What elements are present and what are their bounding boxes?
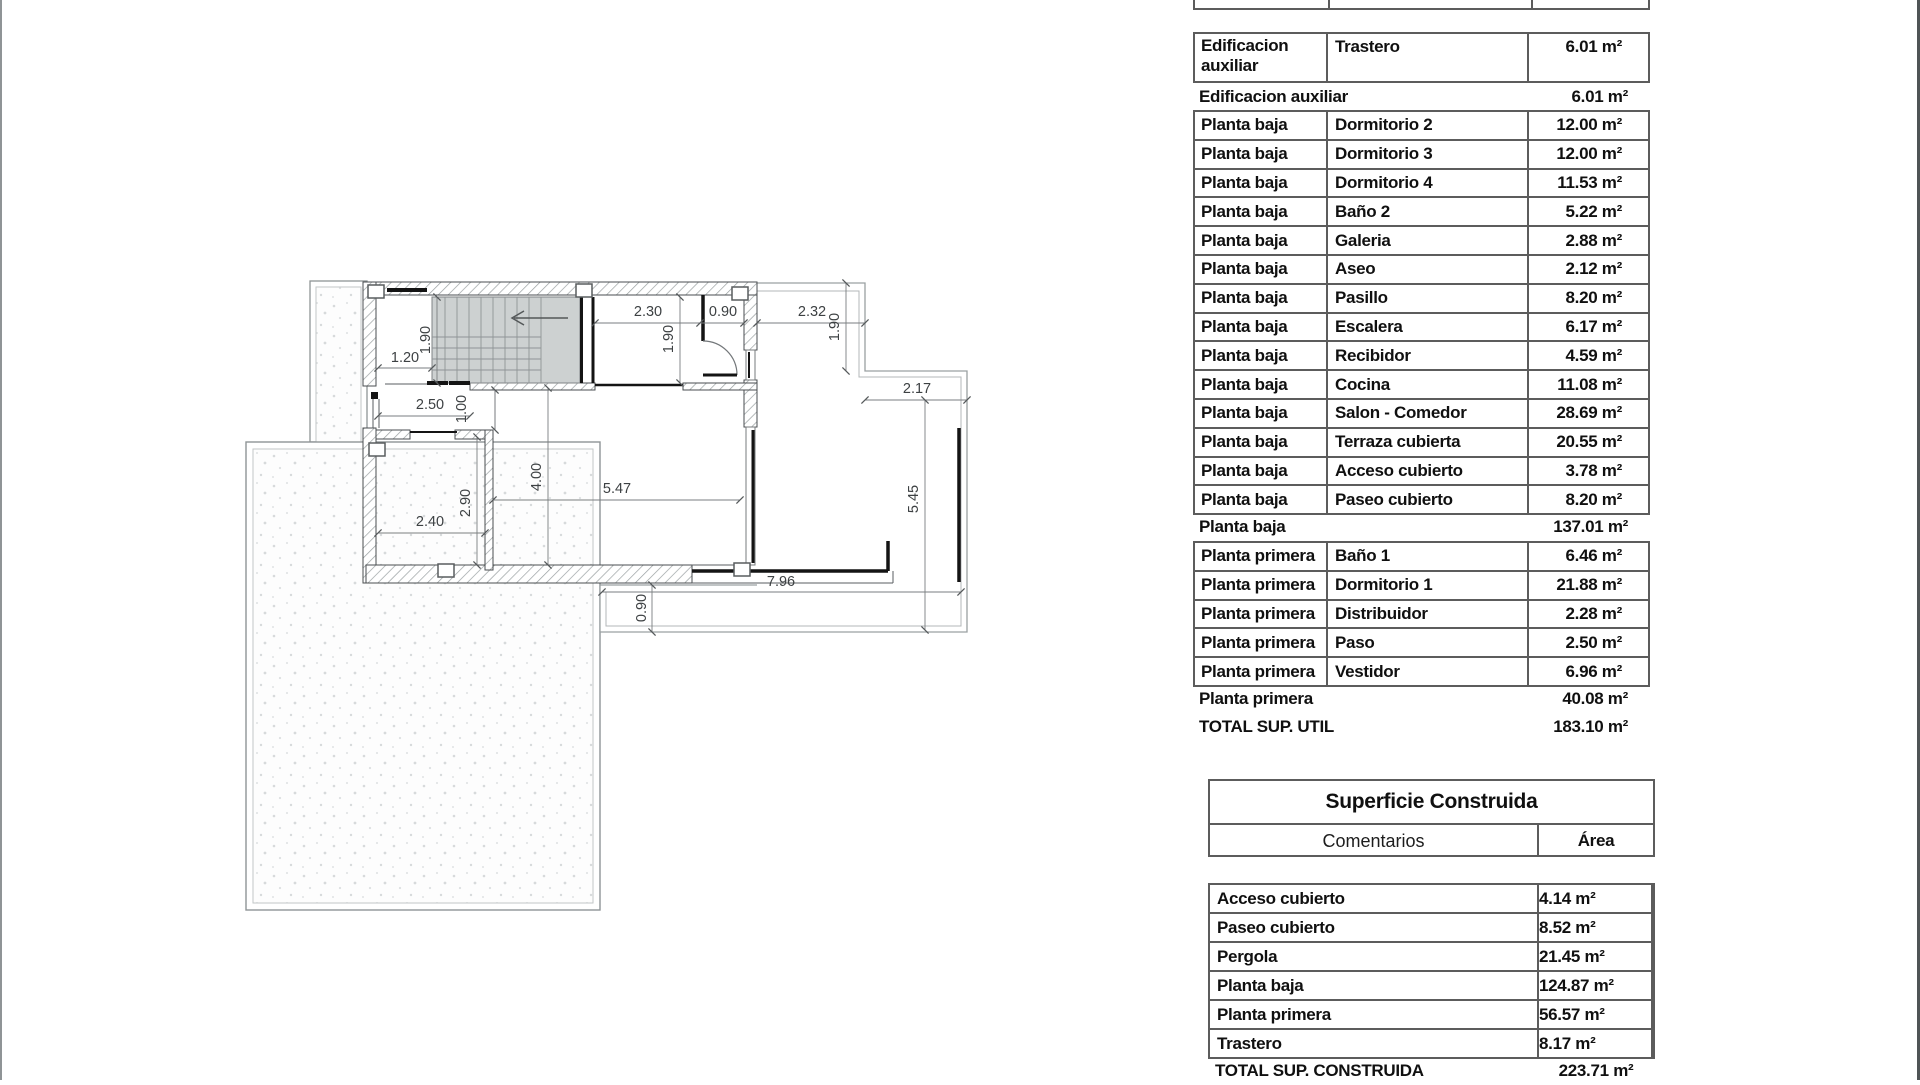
table-row: Planta baja Salon - Comedor 28.69 m² [1193, 400, 1650, 429]
floor-cell: Planta baja [1195, 170, 1328, 197]
table-row: Planta primera Vestidor 6.96 m² [1193, 658, 1650, 687]
room-cell: Pasillo [1328, 285, 1529, 312]
area-cell: 11.08 m² [1529, 375, 1648, 395]
table-row: Pergola 21.45 m² [1208, 943, 1655, 972]
planta-primera-rows: Planta primera Baño 1 6.46 m² Planta pri… [1193, 541, 1650, 687]
area-cell: 11.53 m² [1529, 173, 1648, 193]
col-header-area: Área [1539, 825, 1653, 857]
floor-cell: Planta primera [1195, 572, 1328, 599]
total-sup-construida-row: TOTAL SUP. CONSTRUIDA 223.71 m² [1208, 1059, 1655, 1083]
floor-cell: Planta baja [1195, 227, 1328, 254]
area-cell: 8.52 m² [1539, 914, 1653, 941]
floor-cell: Planta baja [1195, 256, 1328, 283]
stairs [432, 297, 593, 383]
floor-cell: Planta baja [1195, 400, 1328, 427]
table-row: Planta baja Aseo 2.12 m² [1193, 256, 1650, 285]
subtotal-area: 6.01 m² [1572, 87, 1651, 107]
table-cutoff-row [1193, 0, 1650, 10]
table-row: Planta baja Dormitorio 3 12.00 m² [1193, 141, 1650, 170]
room-cell: Galeria [1328, 227, 1529, 254]
dim-label: 5.45 [906, 485, 922, 513]
table-row: Planta primera 56.57 m² [1208, 1001, 1655, 1030]
subtotal-planta-baja: Planta baja 137.01 m² [1193, 513, 1650, 541]
dim-label: 2.90 [458, 489, 474, 517]
floor-cell: Planta baja [1195, 141, 1328, 168]
subtotal-planta-primera: Planta primera 40.08 m² [1193, 685, 1650, 713]
col-header-comentarios: Comentarios [1210, 825, 1539, 857]
subtotal-area: 137.01 m² [1553, 517, 1650, 537]
area-cell: 21.45 m² [1539, 943, 1653, 970]
area-cell: 21.88 m² [1529, 575, 1648, 595]
floor-cell: Planta primera [1195, 601, 1328, 628]
dim-label: 4.00 [529, 463, 545, 491]
dim-label: 1.00 [454, 395, 470, 423]
planta-baja-rows: Planta baja Dormitorio 2 12.00 m² Planta… [1193, 110, 1650, 515]
area-cell: 6.96 m² [1529, 662, 1648, 682]
terrace-left-strip [310, 281, 367, 442]
dim-label: 2.30 [634, 304, 662, 320]
room-cell: Salon - Comedor [1328, 400, 1529, 427]
floor-cell: Planta baja [1195, 371, 1328, 398]
room-cell: Escalera [1328, 314, 1529, 341]
dim-label: 2.32 [798, 304, 826, 320]
dim-label: 2.17 [903, 381, 931, 397]
table-row: Planta baja Baño 2 5.22 m² [1193, 198, 1650, 227]
area-cell: 4.59 m² [1529, 346, 1648, 366]
floor-cell: Planta baja [1195, 486, 1328, 513]
area-cell: 124.87 m² [1539, 972, 1653, 999]
floor-cell: Planta primera [1195, 658, 1328, 685]
util-row-trastero: Edificacion auxiliar Trastero 6.01 m² [1193, 32, 1650, 83]
total-sup-util-row: TOTAL SUP. UTIL 183.10 m² [1193, 713, 1650, 741]
room-cell: Acceso cubierto [1328, 458, 1529, 485]
dim-label: 0.90 [634, 594, 650, 622]
subtotal-label: Edificacion auxiliar [1193, 87, 1572, 107]
comment-cell: Paseo cubierto [1210, 914, 1539, 941]
floor-cell: Planta primera [1195, 543, 1328, 570]
table-row: Paseo cubierto 8.52 m² [1208, 914, 1655, 943]
table-row: Acceso cubierto 4.14 m² [1208, 885, 1655, 914]
dim-label: 1.90 [827, 313, 843, 341]
dim-label: 1.90 [661, 325, 677, 353]
comment-cell: Planta primera [1210, 1001, 1539, 1028]
total-area: 183.10 m² [1553, 717, 1650, 737]
table-row: Planta baja Galeria 2.88 m² [1193, 227, 1650, 256]
floor-cell: Planta baja [1195, 342, 1328, 369]
area-cell: 5.22 m² [1529, 202, 1648, 222]
dim-label: 2.50 [416, 397, 444, 413]
floor-plan: 1.20 1.90 2.30 0.90 1.90 2.32 1.90 2.17 … [0, 0, 1000, 1080]
room-cell: Recibidor [1328, 342, 1529, 369]
floor-cell: Planta baja [1195, 429, 1328, 456]
subtotal-edificacion-auxiliar: Edificacion auxiliar 6.01 m² [1193, 83, 1650, 110]
total-label: TOTAL SUP. CONSTRUIDA [1208, 1061, 1537, 1081]
area-cell: 8.20 m² [1529, 490, 1648, 510]
subtotal-label: Planta primera [1193, 689, 1562, 709]
table-row: Planta primera Paso 2.50 m² [1193, 629, 1650, 658]
room-cell: Baño 2 [1328, 198, 1529, 225]
table-row: Planta primera Distribuidor 2.28 m² [1193, 601, 1650, 630]
area-cell: 2.88 m² [1529, 231, 1648, 251]
room-cell: Dormitorio 4 [1328, 170, 1529, 197]
room-cell: Paseo cubierto [1328, 486, 1529, 513]
dim-label: 5.47 [603, 481, 631, 497]
room-cell: Vestidor [1328, 658, 1529, 685]
comment-cell: Pergola [1210, 943, 1539, 970]
table-row: Planta baja Paseo cubierto 8.20 m² [1193, 486, 1650, 515]
dim-label: 1.20 [391, 350, 419, 366]
area-cell: 28.69 m² [1529, 403, 1648, 423]
area-cell: 8.20 m² [1529, 288, 1648, 308]
total-area: 223.71 m² [1537, 1061, 1655, 1081]
table-row: Planta baja Escalera 6.17 m² [1193, 314, 1650, 343]
floor-cell: Edificacion auxiliar [1195, 34, 1328, 81]
floor-cell: Planta baja [1195, 112, 1328, 139]
room-cell: Dormitorio 2 [1328, 112, 1529, 139]
room-cell: Baño 1 [1328, 543, 1529, 570]
table-row: Planta baja 124.87 m² [1208, 972, 1655, 1001]
area-cell: 2.28 m² [1529, 604, 1648, 624]
room-cell: Trastero [1328, 34, 1529, 81]
area-cell: 2.50 m² [1529, 633, 1648, 653]
area-cell: 4.14 m² [1539, 885, 1653, 912]
table-row: Planta baja Terraza cubierta 20.55 m² [1193, 429, 1650, 458]
room-cell: Terraza cubierta [1328, 429, 1529, 456]
table-row: Planta baja Recibidor 4.59 m² [1193, 342, 1650, 371]
area-cell: 2.12 m² [1529, 259, 1648, 279]
comment-cell: Trastero [1210, 1030, 1539, 1057]
area-cell: 6.17 m² [1529, 317, 1648, 337]
room-cell: Paso [1328, 629, 1529, 656]
area-cell: 20.55 m² [1529, 432, 1648, 452]
construida-title: Superficie Construida [1210, 781, 1653, 825]
construida-header: Superficie Construida Comentarios Área [1208, 779, 1655, 857]
area-cell: 12.00 m² [1529, 115, 1648, 135]
dim-label: 7.96 [767, 574, 795, 590]
dim-label: 1.90 [418, 326, 434, 354]
area-cell: 6.01 m² [1529, 34, 1648, 81]
room-cell: Aseo [1328, 256, 1529, 283]
table-row: Trastero 8.17 m² [1208, 1030, 1655, 1059]
area-cell: 3.78 m² [1529, 461, 1648, 481]
table-row: Planta baja Dormitorio 4 11.53 m² [1193, 170, 1650, 199]
floor-cell: Planta baja [1195, 285, 1328, 312]
comment-cell: Planta baja [1210, 972, 1539, 999]
area-cell: 56.57 m² [1539, 1001, 1653, 1028]
floor-cell: Planta baja [1195, 198, 1328, 225]
dim-label: 0.90 [709, 304, 737, 320]
floor-cell: Planta baja [1195, 458, 1328, 485]
dim-label: 2.40 [416, 514, 444, 530]
area-cell: 8.17 m² [1539, 1030, 1653, 1057]
floor-cell: Planta baja [1195, 314, 1328, 341]
floor-cell: Planta primera [1195, 629, 1328, 656]
table-row: Planta primera Baño 1 6.46 m² [1193, 543, 1650, 572]
construida-rows: Acceso cubierto 4.14 m² Paseo cubierto 8… [1208, 883, 1655, 1059]
subtotal-label: Planta baja [1193, 517, 1553, 537]
total-label: TOTAL SUP. UTIL [1193, 717, 1553, 737]
room-cell: Cocina [1328, 371, 1529, 398]
comment-cell: Acceso cubierto [1210, 885, 1539, 912]
table-row: Planta primera Dormitorio 1 21.88 m² [1193, 572, 1650, 601]
subtotal-area: 40.08 m² [1562, 689, 1650, 709]
area-cell: 12.00 m² [1529, 144, 1648, 164]
table-row: Planta baja Acceso cubierto 3.78 m² [1193, 458, 1650, 487]
table-row: Planta baja Dormitorio 2 12.00 m² [1193, 112, 1650, 141]
room-cell: Dormitorio 1 [1328, 572, 1529, 599]
room-cell: Distribuidor [1328, 601, 1529, 628]
table-row: Planta baja Cocina 11.08 m² [1193, 371, 1650, 400]
table-row: Planta baja Pasillo 8.20 m² [1193, 285, 1650, 314]
area-cell: 6.46 m² [1529, 546, 1648, 566]
room-cell: Dormitorio 3 [1328, 141, 1529, 168]
terrace-garden [246, 442, 600, 910]
